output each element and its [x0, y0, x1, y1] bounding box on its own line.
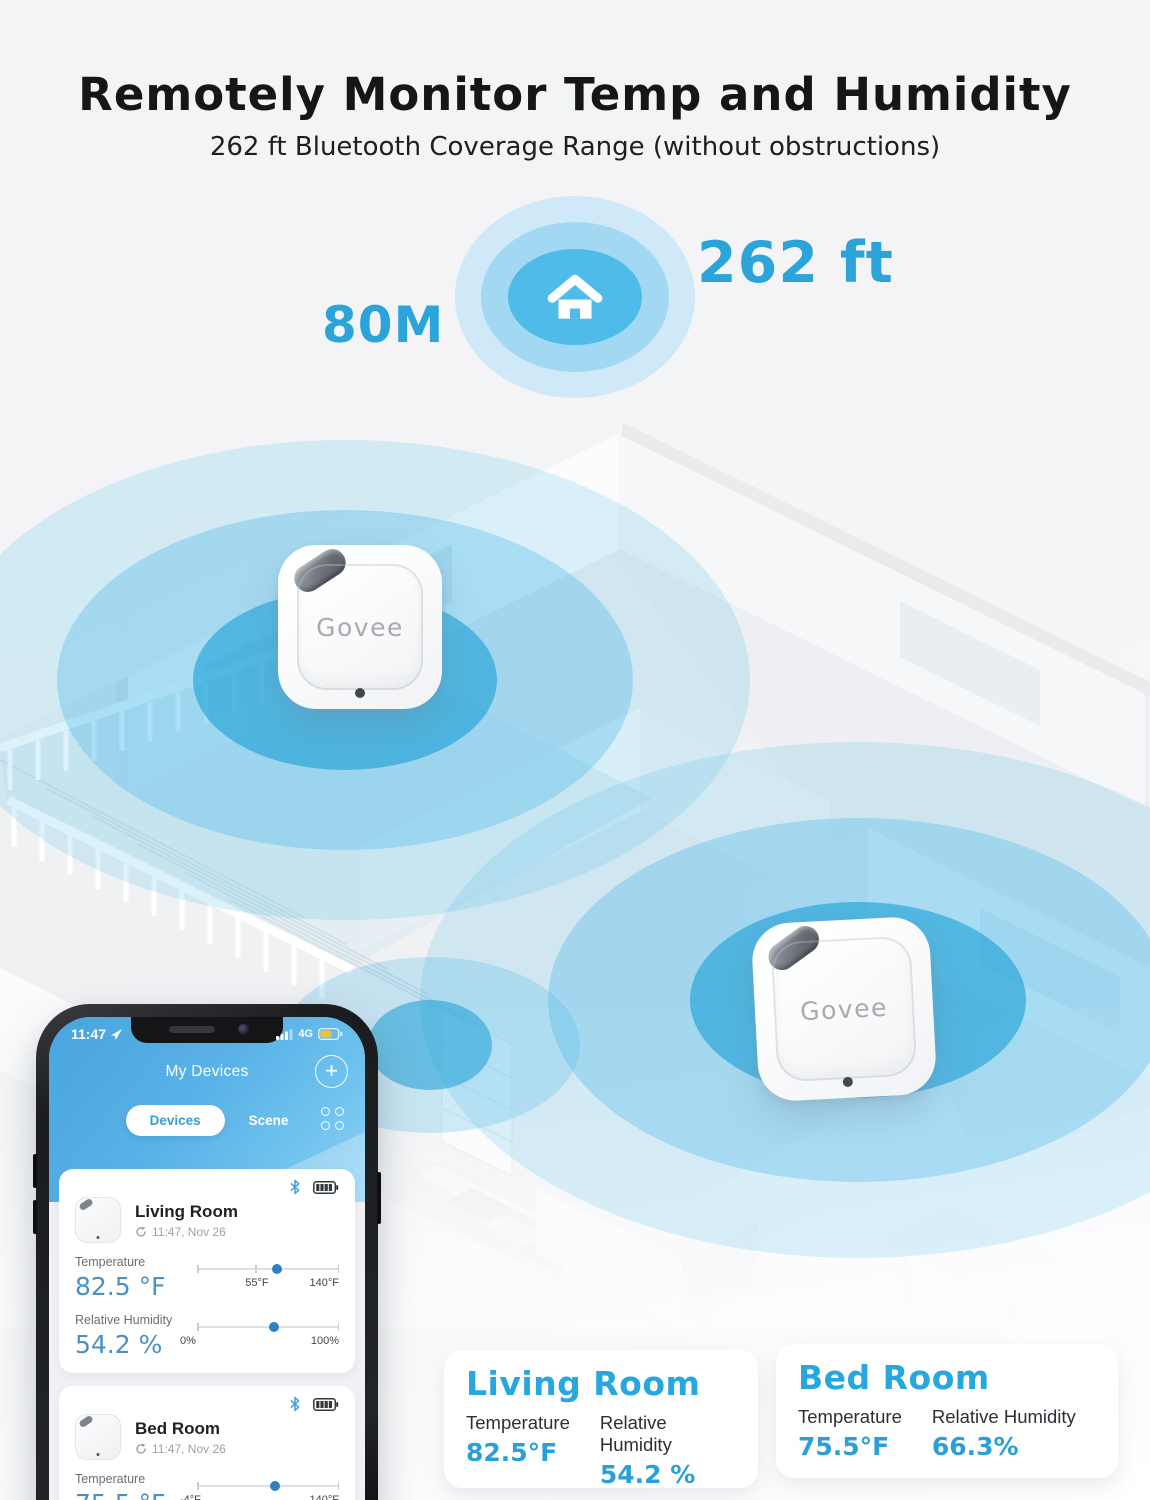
sensor-slot	[78, 1198, 94, 1211]
sensor-brand-label: Govee	[799, 992, 888, 1026]
slider-max-label: 100%	[311, 1335, 339, 1347]
info-card-bed-room: Bed Room Temperature 75.5°F Relative Hum…	[776, 1344, 1118, 1478]
temperature-value: 75.5°F	[798, 1432, 902, 1461]
slider-min-label: -4°F	[180, 1494, 201, 1500]
govee-sensor-bed-room: Govee	[750, 915, 937, 1102]
status-bar: 11:47 4G	[49, 1026, 365, 1042]
sensor-panel: Govee	[297, 564, 423, 690]
location-arrow-icon	[111, 1029, 122, 1040]
slider-handle[interactable]	[270, 1481, 280, 1491]
power-button[interactable]	[377, 1172, 381, 1224]
sensor-brand-label: Govee	[316, 613, 404, 642]
status-time: 11:47	[71, 1026, 106, 1042]
slider-max-label: 140°F	[310, 1277, 339, 1289]
coverage-badge	[455, 196, 695, 398]
page: Remotely Monitor Temp and Humidity 262 f…	[0, 0, 1150, 1500]
volume-down-button[interactable]	[33, 1200, 37, 1234]
temperature-label: Temperature	[75, 1255, 197, 1269]
slider-min-label: 0%	[180, 1335, 196, 1347]
tab-devices[interactable]: Devices	[126, 1105, 225, 1136]
sensor-slot	[78, 1415, 94, 1428]
coverage-ring-inner	[508, 249, 642, 345]
humidity-value: 54.2 %	[600, 1460, 736, 1489]
info-card-title: Bed Room	[798, 1358, 1096, 1397]
refresh-icon[interactable]	[135, 1443, 147, 1455]
network-label: 4G	[298, 1028, 313, 1040]
volume-up-button[interactable]	[33, 1154, 37, 1188]
device-battery-icon	[313, 1181, 339, 1194]
humidity-value: 66.3%	[932, 1432, 1076, 1461]
humidity-label: Relative Humidity	[75, 1313, 197, 1327]
slider-max-label: 140°F	[310, 1494, 339, 1500]
temperature-slider[interactable]	[197, 1268, 339, 1270]
temperature-value: 75.5 °F	[75, 1489, 197, 1500]
info-card-title: Living Room	[466, 1364, 736, 1403]
humidity-value: 54.2 %	[75, 1330, 197, 1359]
temperature-label: Temperature	[75, 1472, 197, 1486]
humidity-label: Relative Humidity	[600, 1412, 736, 1456]
bluetooth-icon	[289, 1396, 301, 1412]
device-thumbnail	[75, 1414, 121, 1460]
humidity-label: Relative Humidity	[932, 1406, 1076, 1428]
device-name: Bed Room	[135, 1419, 226, 1439]
device-name: Living Room	[135, 1202, 238, 1222]
battery-icon	[318, 1028, 343, 1040]
slider-handle[interactable]	[272, 1264, 282, 1274]
phone-screen: 11:47 4G	[49, 1017, 365, 1500]
signal-icon	[276, 1029, 293, 1040]
tab-scene[interactable]: Scene	[249, 1113, 289, 1128]
sensor-hole	[843, 1077, 854, 1088]
layout-grid-icon[interactable]	[321, 1107, 345, 1131]
temperature-slider[interactable]	[197, 1485, 339, 1487]
coverage-imperial-label: 262 ft	[697, 230, 894, 296]
humidity-slider[interactable]	[197, 1326, 339, 1328]
tab-bar: Devices Scene	[49, 1105, 365, 1136]
device-updated: 11:47, Nov 26	[152, 1225, 226, 1239]
device-battery-icon	[313, 1398, 339, 1411]
refresh-icon[interactable]	[135, 1226, 147, 1238]
govee-sensor-living-room: Govee	[278, 545, 442, 709]
device-updated: 11:47, Nov 26	[152, 1442, 226, 1456]
coverage-metric-label: 80M	[322, 296, 444, 354]
page-title: Remotely Monitor Temp and Humidity	[0, 68, 1150, 121]
device-card-bed-room[interactable]: Bed Room 11:47, Nov 26	[59, 1386, 355, 1500]
slider-min-label: 55°F	[245, 1277, 268, 1289]
sensor-hole	[97, 1453, 100, 1456]
page-subtitle: 262 ft Bluetooth Coverage Range (without…	[0, 132, 1150, 162]
phone-mockup: 11:47 4G	[36, 1004, 378, 1500]
device-thumbnail	[75, 1197, 121, 1243]
sensor-hole	[97, 1236, 100, 1239]
info-card-living-room: Living Room Temperature 82.5°F Relative …	[444, 1350, 758, 1488]
device-card-living-room[interactable]: Living Room 11:47, Nov 26	[59, 1169, 355, 1373]
device-list: Living Room 11:47, Nov 26	[49, 1169, 365, 1500]
sensor-panel: Govee	[770, 935, 917, 1082]
bluetooth-icon	[289, 1179, 301, 1195]
add-device-button[interactable]: +	[315, 1055, 348, 1088]
temperature-value: 82.5 °F	[75, 1272, 197, 1301]
sensor-hole	[355, 688, 365, 698]
temperature-label: Temperature	[798, 1406, 902, 1428]
temperature-label: Temperature	[466, 1412, 570, 1434]
slider-handle[interactable]	[269, 1322, 279, 1332]
house-icon	[544, 269, 606, 325]
temperature-value: 82.5°F	[466, 1438, 570, 1467]
